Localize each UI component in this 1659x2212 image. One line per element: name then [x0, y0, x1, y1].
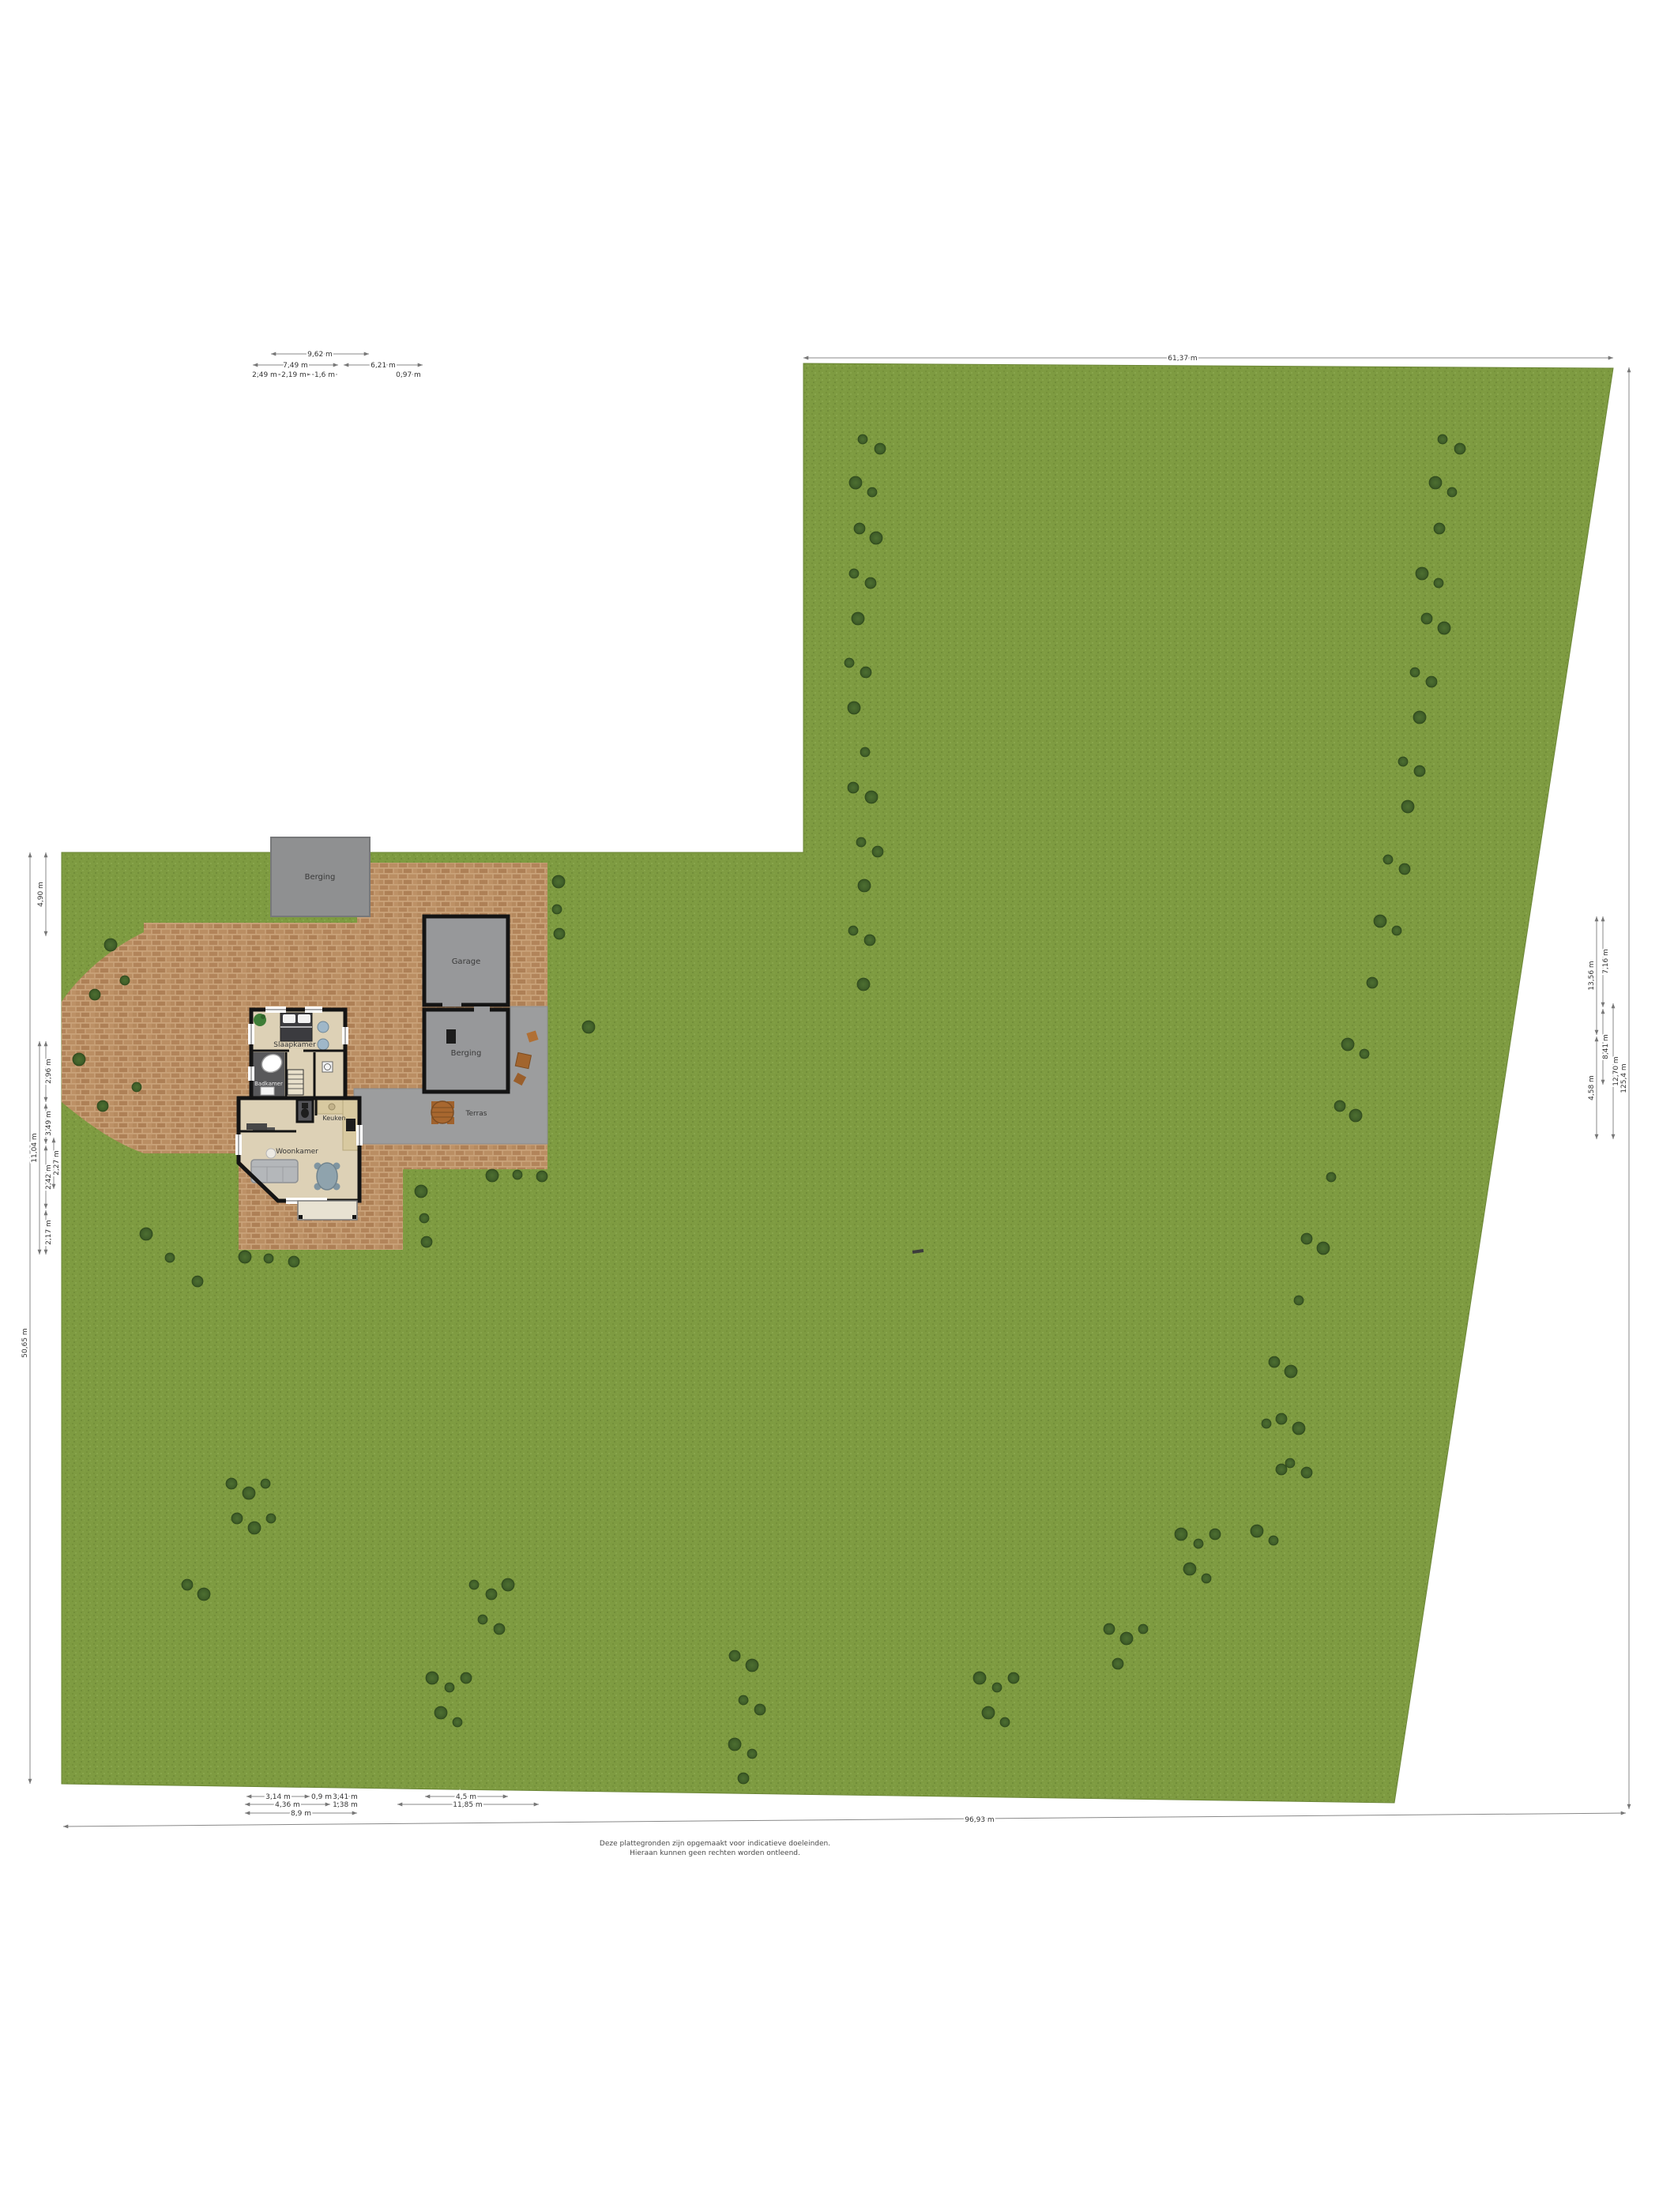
tree	[1410, 668, 1420, 677]
tree	[239, 1251, 251, 1263]
tree	[1341, 1038, 1354, 1051]
tree	[1000, 1717, 1010, 1727]
tree	[1285, 1365, 1297, 1378]
dimension-label: 4,90 m	[37, 882, 45, 907]
tree	[226, 1478, 237, 1489]
kitchen-label: Keuken	[322, 1115, 345, 1122]
site-plan-page: Terras Berging Garage Berging	[0, 0, 1659, 2212]
dimension-label: 7,16 m	[1602, 949, 1610, 974]
tree	[419, 1213, 429, 1223]
tree	[434, 1706, 447, 1719]
tree	[513, 1170, 522, 1179]
tree	[73, 1053, 85, 1066]
disclaimer: Deze plattegronden zijn opgemaakt voor i…	[600, 1839, 830, 1858]
garage-label: Garage	[452, 957, 481, 966]
tree	[1334, 1100, 1345, 1112]
tree	[120, 976, 130, 985]
dimension-label: 8,41 m	[1602, 1034, 1610, 1059]
cooktop	[346, 1119, 355, 1131]
tree	[1269, 1356, 1280, 1367]
storage-door-gap	[474, 1006, 490, 1013]
tree	[1008, 1672, 1019, 1683]
dimension-label: 2,17 m	[45, 1220, 53, 1245]
tree	[231, 1513, 243, 1524]
tree	[1367, 977, 1378, 988]
dimension-label: 4,36 m	[275, 1801, 300, 1809]
tree	[1374, 915, 1386, 927]
tree	[848, 702, 860, 714]
tree	[1301, 1233, 1312, 1244]
dimension-label: 96,93 m	[965, 1816, 994, 1824]
dimension-label: 0,97 m	[396, 371, 421, 379]
tree	[738, 1773, 749, 1784]
tree	[1276, 1464, 1287, 1475]
tree	[864, 935, 875, 946]
dimension-label: 3,41 m	[333, 1793, 358, 1801]
tree	[865, 577, 876, 589]
tree	[469, 1580, 479, 1589]
dimension-label: 3,14 m	[265, 1793, 291, 1801]
terrace-label: Terras	[465, 1110, 487, 1118]
storage-room: Berging	[424, 1006, 508, 1092]
tree	[858, 879, 871, 892]
tree	[1138, 1624, 1148, 1634]
washbasin	[261, 1087, 274, 1095]
tree	[746, 1659, 758, 1672]
tree	[973, 1672, 986, 1684]
doormat	[246, 1123, 267, 1130]
tree	[739, 1695, 748, 1705]
tree	[1438, 434, 1447, 444]
tree	[845, 658, 854, 668]
disclaimer-line2: Hieraan kunnen geen rechten worden ontle…	[600, 1849, 830, 1858]
dimension-label: 7,49 m	[283, 362, 308, 370]
dimension-label: 1,38 m	[333, 1801, 358, 1809]
tree	[582, 1021, 595, 1033]
dimension-label: 2,49 m	[252, 371, 277, 379]
dimension-label: 1,6 m	[314, 371, 335, 379]
tree	[1183, 1563, 1196, 1575]
tree	[140, 1228, 152, 1240]
tree	[1269, 1536, 1278, 1545]
dimension-label: 3,49 m	[45, 1111, 53, 1136]
tree	[243, 1487, 255, 1499]
tree	[266, 1514, 276, 1523]
tree	[747, 1749, 757, 1759]
tree	[1120, 1632, 1133, 1645]
tree	[1454, 443, 1465, 454]
dimension-label: 2,42 m	[45, 1164, 53, 1190]
disclaimer-line1: Deze plattegronden zijn opgemaakt voor i…	[600, 1839, 830, 1849]
tree	[849, 476, 862, 489]
tree	[1398, 757, 1408, 766]
tree	[1262, 1419, 1271, 1428]
tree	[1285, 1458, 1295, 1468]
site-plan-canvas: Terras Berging Garage Berging	[0, 0, 1659, 2212]
washer	[322, 1062, 333, 1072]
tree	[848, 782, 859, 793]
tree	[552, 905, 562, 914]
tree	[852, 612, 864, 625]
tree	[1276, 1413, 1287, 1424]
tree	[421, 1236, 432, 1247]
tree	[1317, 1242, 1330, 1255]
tree	[1401, 800, 1414, 813]
dimension-label: 12,70 m	[1612, 1056, 1620, 1085]
storage-label: Berging	[451, 1049, 482, 1058]
tree	[1434, 523, 1445, 534]
tree	[754, 1704, 766, 1715]
storage-fixture	[446, 1029, 456, 1044]
tree	[858, 434, 867, 444]
tree	[1251, 1525, 1263, 1537]
tree	[1416, 567, 1428, 580]
plant-detail	[261, 1014, 265, 1019]
tree	[1175, 1528, 1187, 1540]
tree	[875, 443, 886, 454]
tree	[867, 487, 877, 497]
chair	[318, 1039, 329, 1050]
tree	[1399, 863, 1410, 875]
dimension-label: 13,56 m	[1588, 961, 1596, 990]
tree	[870, 532, 882, 544]
tree	[554, 928, 565, 939]
tree	[1104, 1623, 1115, 1635]
tree	[97, 1100, 108, 1112]
tree	[856, 837, 866, 847]
dimension-label: 2,19 m	[281, 371, 307, 379]
tree	[1294, 1296, 1303, 1305]
tree	[261, 1479, 270, 1488]
tree	[502, 1578, 514, 1591]
dimension-label: 0,9 m	[311, 1793, 332, 1801]
garage-door-gap	[442, 1000, 461, 1006]
tree	[494, 1623, 505, 1635]
tree	[1194, 1539, 1203, 1548]
porch	[298, 1201, 357, 1220]
tree	[872, 846, 883, 857]
tree	[445, 1683, 454, 1692]
dimension-label: 61,37 m	[1168, 355, 1197, 363]
tree	[848, 926, 858, 935]
tree	[478, 1615, 487, 1624]
tree	[104, 939, 117, 951]
tree	[552, 875, 565, 888]
tree	[1426, 676, 1437, 687]
tree	[1434, 578, 1443, 588]
tree	[1383, 855, 1393, 864]
tree	[1421, 613, 1432, 624]
tree	[865, 791, 878, 803]
dimension-label: 11,04 m	[31, 1133, 39, 1162]
tree	[860, 667, 871, 678]
toilet	[301, 1103, 309, 1118]
tree	[486, 1589, 497, 1600]
tree	[1202, 1574, 1211, 1583]
tree	[1438, 622, 1450, 634]
tree	[536, 1171, 547, 1182]
tree	[192, 1276, 203, 1287]
dimension-label: 9,62 m	[307, 351, 333, 359]
side-table	[266, 1149, 276, 1158]
tree	[1292, 1422, 1305, 1435]
tree	[1392, 926, 1401, 935]
tree	[849, 569, 859, 578]
chair	[318, 1021, 329, 1033]
tree	[1301, 1467, 1312, 1478]
tree	[1209, 1529, 1221, 1540]
dimension-label: 6,21 m	[371, 362, 396, 370]
bathroom-label: Badkamer	[254, 1081, 283, 1087]
tree	[1326, 1172, 1336, 1182]
tree	[132, 1082, 141, 1092]
dimension-label: 2,96 m	[45, 1059, 53, 1084]
tree	[182, 1579, 193, 1590]
tree	[1429, 476, 1442, 489]
tree	[1414, 766, 1425, 777]
tree	[1413, 711, 1426, 724]
stairs	[288, 1070, 303, 1095]
sink	[329, 1104, 335, 1110]
tree	[415, 1185, 427, 1198]
tree	[1360, 1049, 1369, 1059]
tree	[1112, 1658, 1123, 1669]
garage: Garage	[424, 916, 508, 1006]
tree	[248, 1522, 261, 1534]
dining-set	[314, 1163, 340, 1191]
shed-label: Berging	[305, 873, 336, 882]
tree	[860, 747, 870, 757]
tree	[728, 1738, 741, 1751]
tree	[729, 1650, 740, 1661]
tree	[197, 1588, 210, 1601]
bedroom-label: Slaapkamer	[273, 1041, 316, 1049]
dimension-label: 8,9 m	[291, 1810, 311, 1818]
tree	[1447, 487, 1457, 497]
tree	[982, 1706, 995, 1719]
dimension-label: 2,27 m	[53, 1150, 61, 1176]
tree	[857, 978, 870, 991]
tree	[453, 1717, 462, 1727]
bed	[280, 1013, 312, 1041]
tree	[1349, 1109, 1362, 1122]
tree	[288, 1256, 299, 1267]
dimension-label: 4,5 m	[456, 1793, 476, 1801]
tree	[854, 523, 865, 534]
tree	[89, 989, 100, 1000]
dimension-label: 50,65 m	[21, 1328, 29, 1357]
tree	[461, 1672, 472, 1683]
shed: Berging	[271, 837, 370, 916]
dimension-label: 125,4 m	[1620, 1063, 1628, 1093]
dimension-label: 4,58 m	[1588, 1075, 1596, 1100]
tree	[992, 1683, 1002, 1692]
tree	[486, 1169, 498, 1182]
tree	[165, 1253, 175, 1262]
living-label: Woonkamer	[276, 1148, 318, 1156]
dimension-label: 11,85 m	[453, 1801, 482, 1809]
garden-table	[431, 1101, 454, 1124]
tree	[426, 1672, 438, 1684]
tree	[264, 1254, 273, 1263]
